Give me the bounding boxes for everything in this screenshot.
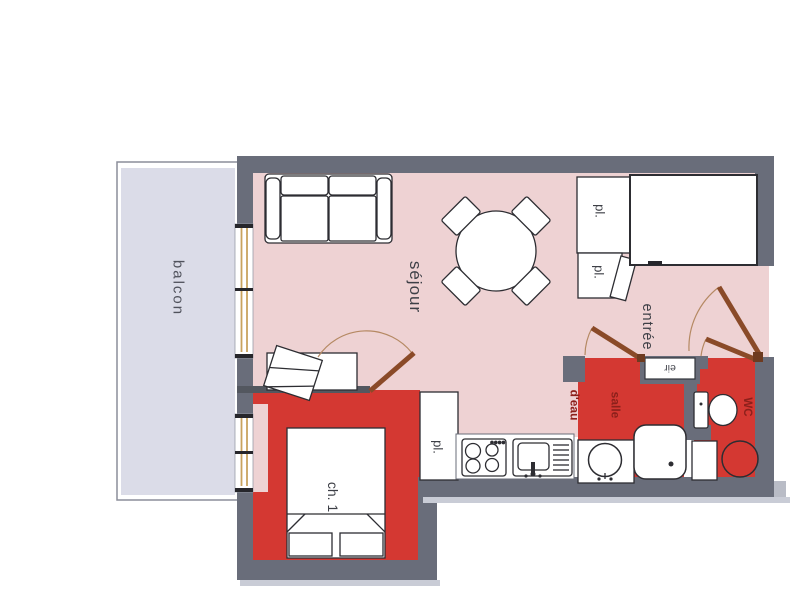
closet-mid [578, 253, 636, 301]
toilet-label: WC [741, 397, 753, 416]
bedroom-window [235, 414, 253, 492]
utility-box-label: eir [664, 362, 676, 374]
balcony-label: balcon [170, 260, 187, 316]
storage-unit [630, 175, 757, 265]
wc-basin-circle [722, 441, 758, 477]
closet-kitchen [420, 392, 458, 480]
stove [462, 439, 506, 476]
living-room-label: séjour [405, 261, 425, 313]
kitchen-sink [513, 439, 572, 478]
bathroom-label: salle d'eau [553, 390, 650, 421]
toilet [694, 392, 737, 428]
floor-plan: balcon séjour entrée pl. pl. pl. ch. 1 s… [0, 0, 800, 603]
wc-cabinet [692, 441, 717, 480]
closet-mid-label: pl. [592, 265, 607, 279]
floor-plan-drawing [0, 0, 800, 603]
bedroom-label: ch. 1 [325, 482, 341, 512]
entrance-label: entrée [639, 303, 655, 350]
bathroom-label-line1: salle [608, 390, 622, 421]
closet-top-label: pl. [593, 204, 608, 218]
living-room-window [235, 224, 253, 358]
balcony-floor [117, 162, 240, 500]
shower [634, 425, 686, 479]
closet-kitchen-label: pl. [431, 440, 446, 454]
sofa [265, 174, 392, 243]
bathroom-label-line2: d'eau [567, 390, 581, 421]
washbasin [578, 440, 634, 483]
